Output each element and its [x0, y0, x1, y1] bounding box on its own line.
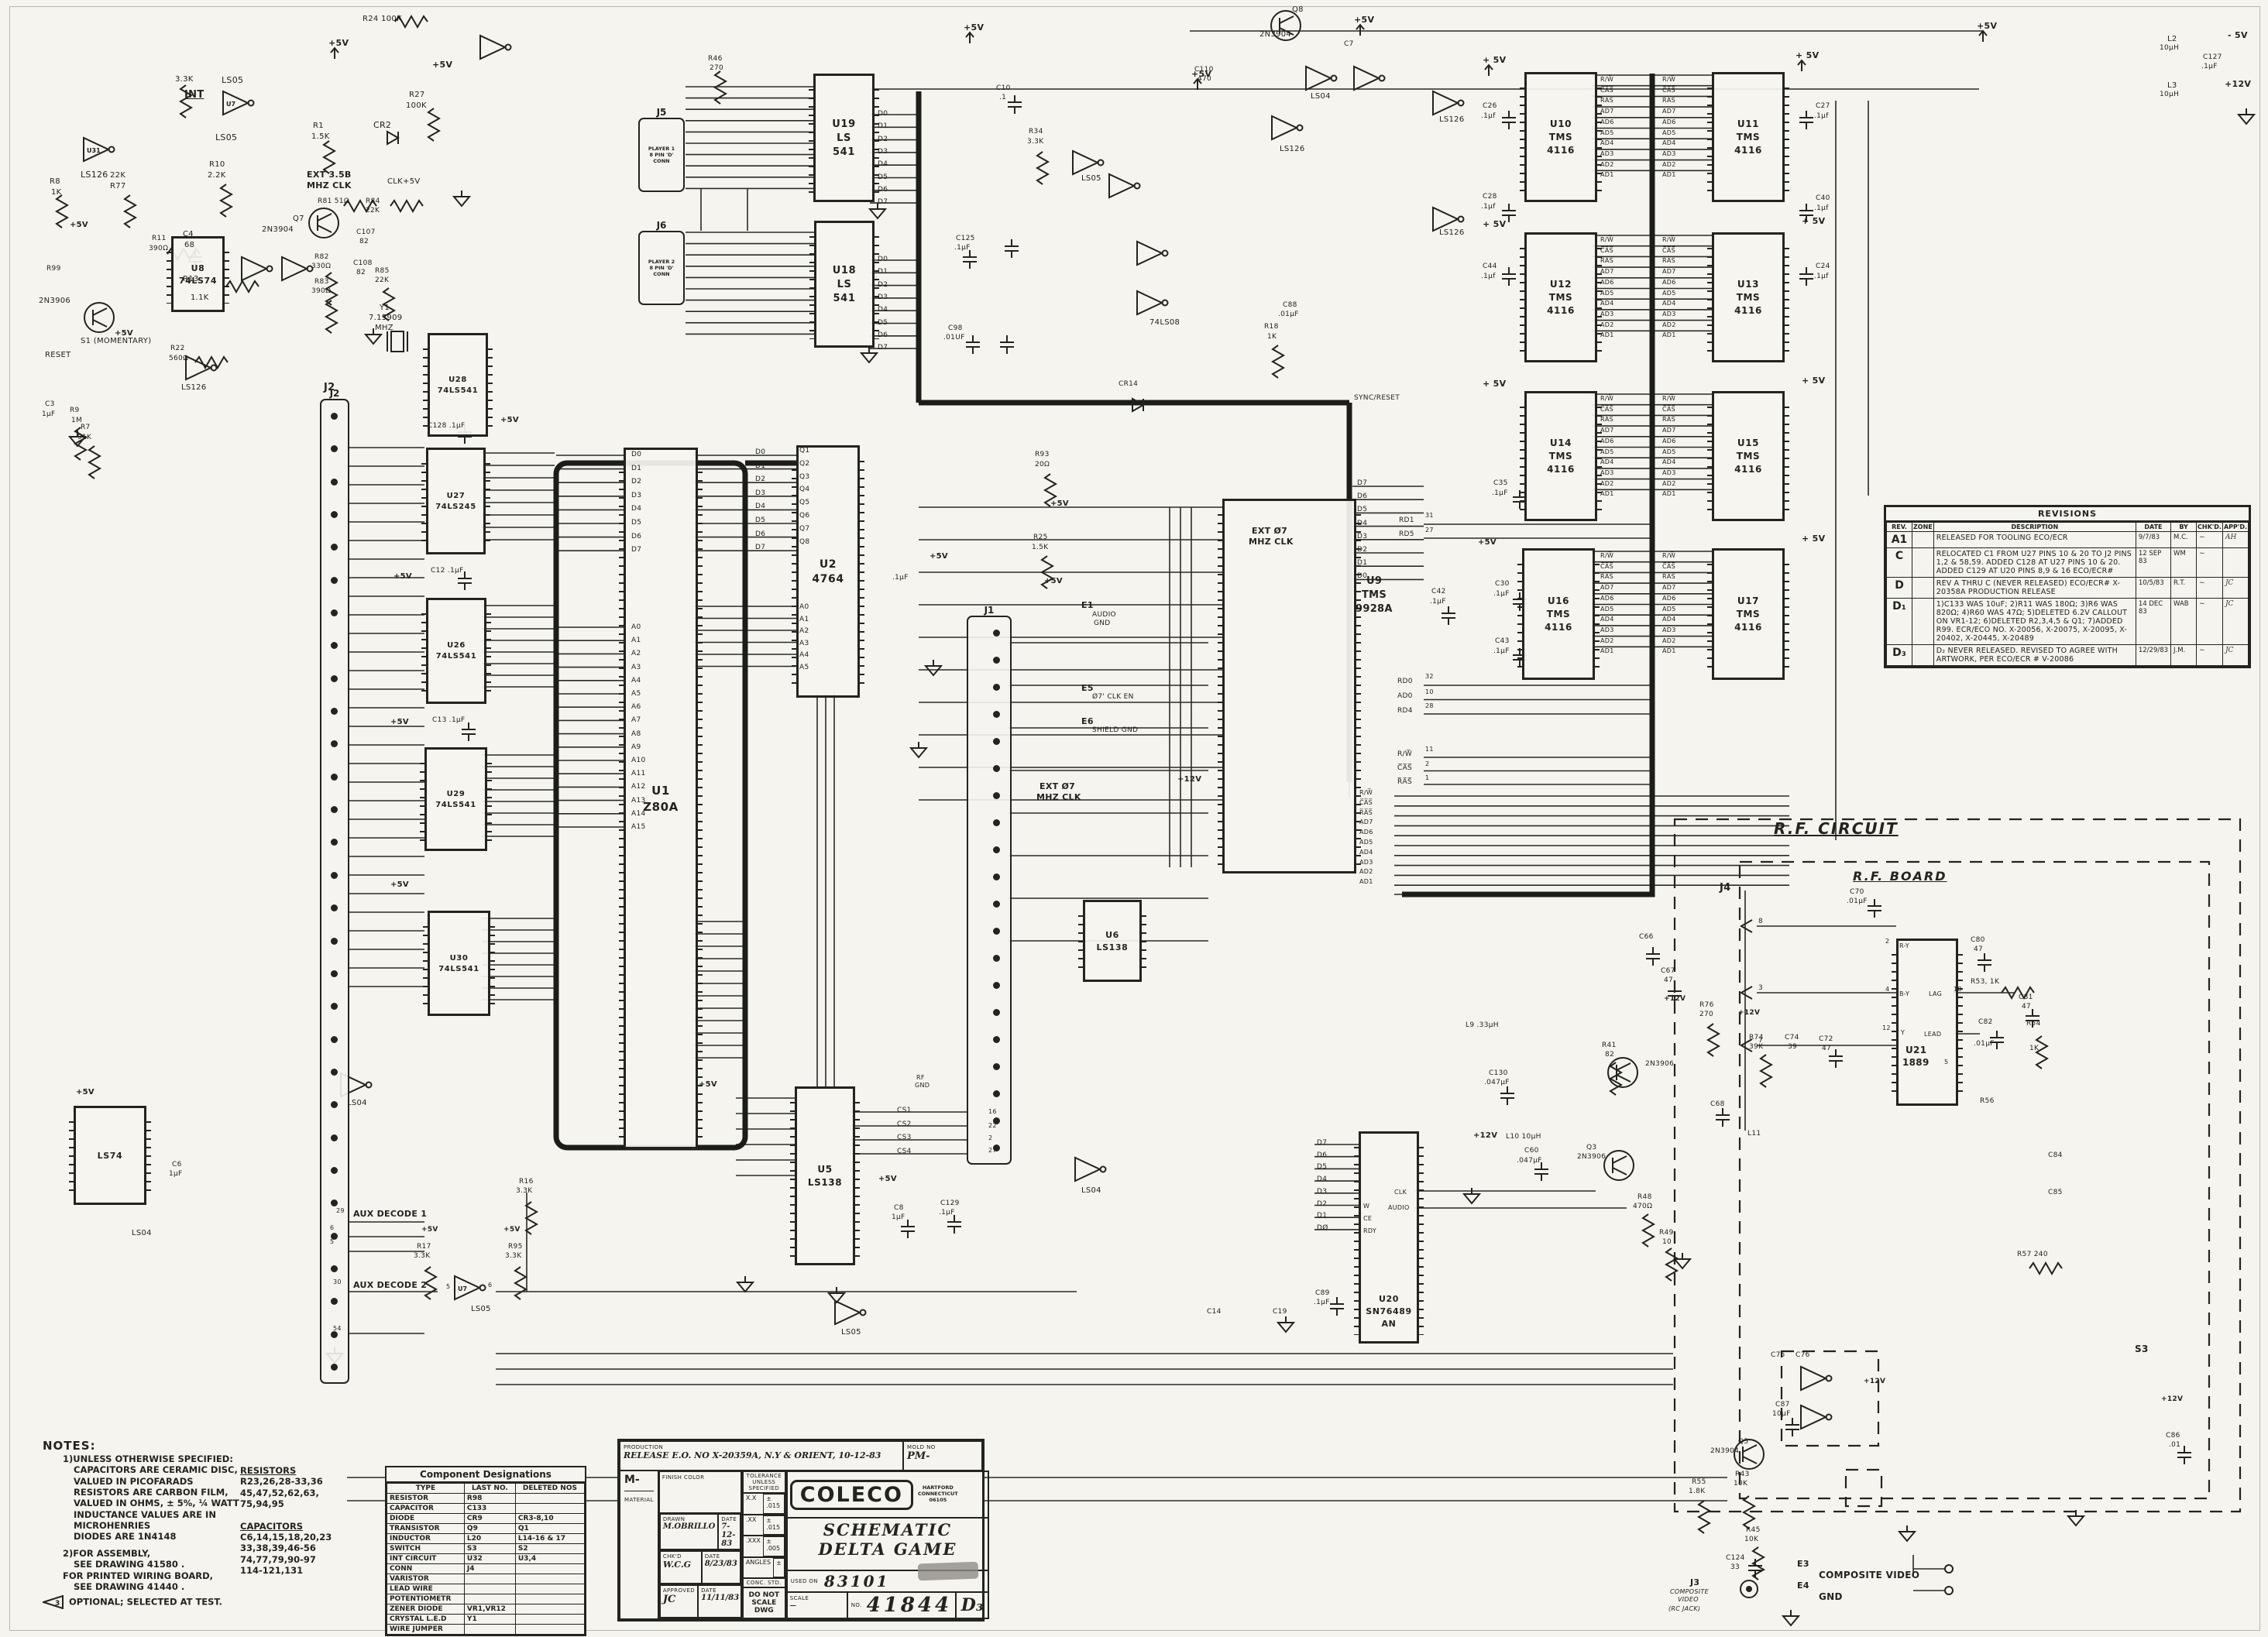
ground-icon — [1783, 1610, 1799, 1625]
component-label: LS05 — [471, 1306, 491, 1314]
pin-label: D0 — [755, 449, 765, 456]
component-label: Q5 — [1738, 1439, 1748, 1446]
component-label: RDY — [1363, 1228, 1376, 1234]
pin-label: D3 — [878, 294, 888, 301]
ground-icon — [926, 660, 941, 675]
component-label: C42 — [1431, 589, 1446, 595]
revision-cell: M.C. — [2171, 532, 2197, 548]
revision-cell: D₁ — [1887, 599, 1912, 645]
component-label: C125 — [956, 235, 975, 242]
connector-pin — [331, 413, 338, 420]
component-label: + 5V — [1483, 379, 1506, 389]
capacitor-icon — [1502, 111, 1516, 129]
supply-arrow-icon — [1485, 65, 1493, 76]
component-label: GND — [1819, 1592, 1843, 1602]
resistor-icon — [75, 427, 86, 460]
component-label: C80 — [1971, 937, 1985, 944]
date-label: DATE — [721, 1516, 737, 1522]
dram-signal: R̅A̅S̅ — [1662, 258, 1675, 264]
ic-label: LS — [837, 132, 851, 144]
resistor-icon — [226, 281, 259, 292]
transistor-icon — [1617, 1063, 1631, 1082]
component-label: SYNC/RESET — [1354, 395, 1400, 402]
revision-cell: 10/5/83 — [2136, 578, 2170, 599]
connector-pin — [993, 846, 1000, 853]
resistor-icon — [2029, 1263, 2062, 1274]
dram-signal: AD3 — [1662, 627, 1676, 633]
capacitor-icon — [1646, 947, 1660, 966]
rf-dashed-boundary — [1740, 862, 2209, 1498]
component-label: EXT Ø7 — [1252, 527, 1287, 536]
component-label: S1 (MOMENTARY) — [81, 338, 151, 346]
connector-pin — [331, 1364, 338, 1371]
component-label: 2N3904 — [262, 226, 294, 235]
capacitor-icon — [1785, 1418, 1799, 1436]
comp-table-cell — [515, 1594, 584, 1604]
component-label: MHZ CLK — [1249, 537, 1294, 547]
chkd-date: 8/23/83 — [705, 1560, 737, 1568]
pin-label: A1 — [799, 616, 809, 623]
component-label: Ø7' CLK EN — [1092, 694, 1134, 701]
supply-arrow-icon — [1798, 60, 1806, 71]
connector-j6: J6PLAYER 28 PIN 'D'CONN — [638, 231, 685, 305]
gate-icon — [1354, 67, 1379, 90]
ic-u12: U12TMS4116 — [1524, 232, 1597, 362]
pin-label: Q6 — [799, 513, 809, 520]
component-label: 20Ω — [1035, 462, 1050, 468]
comp-table-header: LAST NO. — [464, 1484, 515, 1494]
component-label: 2N3904 — [1710, 1448, 1739, 1455]
notes-block: NOTES: 1)UNLESS OTHERWISE SPECIFIED: CAP… — [43, 1439, 368, 1609]
revision-row: D₁1)C133 WAS 10uF; 2)R11 WAS 180Ω; 3)R6 … — [1887, 599, 2249, 645]
tol-val: ± .005 — [763, 1536, 784, 1556]
tolerance-title: TOLERANCE UNLESS SPECIFIED — [743, 1471, 785, 1493]
component-label: R49 — [1659, 1230, 1674, 1237]
ic-label: U1 — [651, 784, 670, 798]
component-label: +5V — [1044, 578, 1063, 586]
component-label: C88 — [1283, 302, 1297, 309]
note-line: RESISTORS ARE CARBON FILM, VALUED IN OHM… — [74, 1487, 259, 1509]
pin-label: A0 — [799, 604, 809, 611]
component-label: TMS — [1362, 590, 1387, 601]
component-label: COMPOSITE VIDEO — [1819, 1570, 1919, 1580]
component-label: RF — [916, 1075, 925, 1081]
capacitors-list-title: CAPACITORS — [240, 1521, 364, 1532]
comp-table-cell — [515, 1615, 584, 1625]
component-label: C76 — [1795, 1352, 1810, 1359]
production-eo-number: RELEASE E.O. NO X-20359A, N.Y & ORIENT, … — [624, 1450, 881, 1460]
ic-u17: U17TMS4116 — [1712, 548, 1785, 680]
gate-icon — [186, 356, 211, 379]
component-label: R18 — [1264, 324, 1279, 331]
ic-label: LS — [837, 279, 852, 290]
notes-heading: NOTES: — [43, 1439, 368, 1453]
dram-signal: AD7 — [1662, 585, 1676, 591]
component-label: 18 — [1954, 987, 1962, 993]
comp-table-row: WIRE JUMPER — [387, 1625, 585, 1635]
resistors-list-line: R23,26,28-33,36 — [240, 1476, 364, 1487]
component-label: LEAD — [1924, 1031, 1941, 1038]
comp-table-cell: L14-16 & 17 — [515, 1534, 584, 1544]
component-label: 32 — [1425, 674, 1434, 680]
comp-table-cell: ZENER DIODE — [387, 1604, 465, 1615]
component-label: 74LS08 — [1149, 319, 1180, 328]
dram-signal: AD2 — [1662, 322, 1676, 328]
revision-cell: ~ — [2197, 532, 2223, 548]
pin-label: AD5 — [1359, 839, 1373, 846]
pin-label: D1 — [878, 123, 888, 130]
connector-pin — [331, 1298, 338, 1305]
pin-label: D4 — [878, 307, 888, 314]
tol-row: .XX — [744, 1515, 763, 1536]
pin-label: D3 — [631, 492, 641, 499]
pin-label: D4 — [1317, 1176, 1327, 1183]
revision-row: CRELOCATED C1 FROM U27 PINS 10 & 20 TO J… — [1887, 548, 2249, 578]
component-label: + 5V — [1802, 217, 1825, 226]
pin-label: A15 — [631, 824, 646, 831]
ic-label: 4116 — [1734, 464, 1762, 475]
connector-pin — [331, 445, 338, 452]
component-label: 8 — [1758, 918, 1763, 925]
ic-label: 4116 — [1545, 622, 1572, 633]
connector-j5: J5PLAYER 18 PIN 'D'CONN — [638, 118, 685, 192]
gate-icon — [242, 257, 266, 280]
revision-cell: D₂ NEVER RELEASED. REVISED TO AGREE WITH… — [1933, 645, 2136, 666]
component-label: C7 — [1344, 41, 1354, 48]
component-label: 68 — [184, 242, 194, 250]
component-label: .1μF — [1492, 490, 1508, 497]
connector-pin — [331, 1134, 338, 1141]
revision-cell: ~ — [2197, 599, 2223, 645]
pin-label: D6 — [878, 187, 888, 194]
ic-u14: U14TMS4116 — [1524, 391, 1597, 521]
component-label: C14 — [1207, 1309, 1222, 1316]
component-label: LS126 — [1439, 229, 1465, 238]
pin-label: A13 — [631, 798, 646, 805]
component-label: 270 — [1699, 1011, 1713, 1018]
drawn-name: M.OBRILLO — [663, 1522, 715, 1531]
dram-signal: AD7 — [1600, 585, 1614, 591]
component-label: .1μf — [1814, 113, 1829, 120]
component-label: C124 — [1726, 1555, 1745, 1562]
component-label: 1.5K — [1032, 544, 1048, 551]
connector-label: J1 — [985, 605, 995, 616]
pin-label: CS4 — [897, 1148, 912, 1155]
ic-u30: U3074LS541 — [428, 911, 490, 1016]
component-label: 390Ω — [149, 245, 168, 252]
connector-chevron-icon — [1741, 920, 1752, 932]
dram-signal: R/W̅ — [1662, 77, 1675, 83]
capacitor-icon — [1005, 239, 1019, 258]
transistor-icon — [1743, 1445, 1757, 1464]
capacitor-icon — [1500, 1086, 1514, 1105]
dram-signal: AD7 — [1600, 427, 1614, 434]
component-label: U21 — [1905, 1045, 1926, 1055]
component-label: 10μH — [2160, 91, 2179, 98]
component-label: .1μF — [1493, 648, 1510, 655]
capacitor-icon — [1799, 267, 1813, 286]
connector-pin — [331, 1265, 338, 1272]
component-label: 22K — [110, 172, 125, 180]
pin-label: A7 — [631, 717, 641, 724]
component-label: 270 — [710, 65, 723, 72]
ic-u26: U2674LS541 — [426, 598, 486, 704]
ic-label: 74LS245 — [435, 503, 476, 511]
component-label: 2.2K — [208, 172, 226, 180]
dram-signal: AD6 — [1600, 595, 1614, 602]
connector-pin — [331, 839, 338, 846]
component-label: 2N3906 — [39, 297, 70, 306]
connector-pin — [993, 630, 1000, 637]
gate-icon — [1433, 91, 1458, 115]
connector-pin — [331, 479, 338, 486]
component-label: R85 — [375, 268, 390, 275]
revision-cell: REV A THRU C (NEVER RELEASED) ECO/ECR# X… — [1933, 578, 2136, 599]
pin-label: C̅A̅S̅ — [1359, 800, 1373, 806]
dram-signal: AD3 — [1662, 311, 1676, 317]
component-label: EXT 3.5B — [307, 170, 352, 180]
comp-table-row: CAPACITORC133 — [387, 1504, 585, 1514]
ic-label: AN — [1382, 1319, 1397, 1329]
dram-signal: AD3 — [1600, 627, 1614, 633]
revision-cell — [1912, 645, 1934, 666]
dram-signal: AD3 — [1662, 151, 1676, 157]
component-label: 470Ω — [1633, 1203, 1652, 1210]
dram-signal: AD3 — [1662, 470, 1676, 476]
component-label: +5V — [964, 23, 984, 33]
pin-label: A3 — [631, 664, 641, 671]
component-label: C98 — [948, 325, 963, 332]
component-label: C3 — [45, 401, 55, 408]
ic-label: 74LS541 — [438, 965, 479, 973]
pin-label: D2 — [878, 282, 888, 289]
component-label: AUDIO — [1092, 612, 1116, 619]
connector-pin — [331, 708, 338, 715]
component-label: .047μF — [1517, 1158, 1542, 1165]
comp-table-row: LEAD WIRE — [387, 1584, 585, 1594]
dram-signal: AD2 — [1600, 322, 1614, 328]
ic-u10: U10TMS4116 — [1524, 72, 1597, 202]
capacitor-icon — [1502, 267, 1516, 286]
ic-label: 4116 — [1734, 622, 1762, 633]
pin-label: A1 — [631, 637, 641, 644]
pin-label: D6 — [1357, 493, 1367, 500]
dram-signal: R̅A̅S̅ — [1600, 258, 1613, 264]
pin-label: A3 — [799, 640, 809, 647]
ic-label: U19 — [832, 118, 855, 130]
component-label: C44 — [1483, 263, 1497, 270]
pin-label: Q4 — [799, 486, 809, 493]
comp-table-cell: SWITCH — [387, 1544, 465, 1554]
ic-label: 74LS541 — [438, 386, 479, 395]
component-label: +12V — [1738, 1010, 1760, 1017]
ic-label: U5 — [817, 1164, 832, 1175]
dram-signal: AD5 — [1600, 606, 1614, 613]
component-label: +5V — [421, 1227, 438, 1234]
ic-label: U17 — [1737, 595, 1759, 606]
revision-cell: JC — [2222, 578, 2248, 599]
component-label: .1μf — [1481, 113, 1496, 120]
revision-cell: C — [1887, 548, 1912, 578]
connector-pin — [331, 544, 338, 551]
component-label: 5 — [330, 1239, 334, 1245]
component-label: C107 — [356, 229, 376, 236]
ic-label: LS138 — [808, 1177, 842, 1188]
component-label: C67 — [1661, 968, 1675, 975]
resistor-icon — [526, 1202, 537, 1234]
component-label: R76 — [1699, 1002, 1714, 1009]
component-label: R45 — [1746, 1527, 1761, 1534]
component-label: U9 — [1366, 576, 1382, 587]
component-label: B-Y — [1899, 991, 1909, 997]
capacitor-icon — [1716, 1108, 1730, 1127]
component-label: C̅A̅S̅ — [1397, 765, 1412, 772]
component-label: + 5V — [1483, 220, 1506, 229]
dram-signal: AD6 — [1600, 119, 1614, 125]
component-label: .01μF — [1847, 898, 1868, 905]
terminal-icon — [1945, 1565, 1953, 1573]
pin-label: D2 — [1317, 1201, 1327, 1208]
pin-label: Q1 — [799, 448, 809, 455]
ground-icon — [1278, 1316, 1294, 1332]
resistor-icon — [125, 195, 136, 228]
component-label: LS05 — [215, 133, 237, 142]
brand-city: HARTFORD — [923, 1484, 954, 1491]
component-label: 1 — [1425, 775, 1429, 781]
ic-label: SN76489 — [1366, 1306, 1412, 1316]
dram-signal: AD1 — [1600, 332, 1614, 338]
ic-label: 4116 — [1547, 464, 1575, 475]
transistor-icon — [309, 208, 338, 238]
pin-label: D7 — [1357, 480, 1367, 487]
component-label: LS126 — [81, 170, 108, 180]
comp-table-header: DELETED NOS — [515, 1484, 584, 1494]
resistors-list-line: 75,94,95 — [240, 1498, 364, 1509]
dram-signal: R/W̅ — [1662, 553, 1675, 559]
ic-u6: U6LS138 — [1083, 900, 1142, 982]
component-label: VIDEO — [1678, 1597, 1699, 1603]
transistor-icon — [84, 303, 114, 332]
connector-pin — [331, 609, 338, 616]
component-label: .1μF — [1314, 1299, 1330, 1306]
dram-signal: AD5 — [1600, 130, 1614, 136]
component-label: W — [1363, 1203, 1369, 1210]
note-line: DIODES ARE 1N4148 — [74, 1531, 259, 1542]
dram-signal: R/W̅ — [1662, 396, 1675, 402]
ground-icon — [2239, 108, 2254, 124]
ic-u16: U16TMS4116 — [1522, 548, 1595, 680]
crystal-icon — [391, 331, 404, 352]
pin-label: D4 — [755, 503, 765, 510]
pin-label: D2 — [878, 136, 888, 143]
revision-cell — [1912, 532, 1934, 548]
component-label: C43 — [1495, 638, 1510, 645]
comp-table-cell: U3,4 — [515, 1554, 584, 1564]
component-label: R56 — [1980, 1098, 1995, 1105]
comp-table-cell — [515, 1494, 584, 1504]
connector-pin — [331, 970, 338, 977]
component-label: L9 .33μH — [1466, 1022, 1499, 1029]
ground-icon — [737, 1276, 753, 1292]
component-label: .01 — [2169, 1442, 2180, 1449]
component-label: 47 — [1822, 1045, 1831, 1052]
comp-table-cell — [515, 1584, 584, 1594]
ic-label: U11 — [1737, 118, 1759, 129]
component-label: +5V — [1478, 539, 1497, 547]
component-label: J4 — [1720, 883, 1730, 894]
pin-label: Q5 — [799, 499, 809, 506]
tol-row: .XXX — [744, 1536, 763, 1556]
ic-label: U29 — [447, 790, 466, 798]
component-label: 2 — [988, 1135, 992, 1141]
component-label: E4 — [1797, 1581, 1809, 1591]
ic-u20: U20SN76489AN — [1359, 1131, 1419, 1344]
component-label: 1K — [51, 189, 62, 197]
dram-signal: AD4 — [1600, 140, 1614, 146]
ic-label: TMS — [1549, 451, 1573, 462]
pin-label: A4 — [631, 678, 641, 685]
crystal-icon — [387, 331, 407, 352]
revisions-header: BY — [2171, 523, 2197, 532]
ic-label: U8 — [191, 263, 205, 273]
pin-label: R̅A̅S̅ — [1359, 810, 1373, 816]
dram-signal: AD2 — [1662, 162, 1676, 168]
revisions-header: APP'D. — [2222, 523, 2248, 532]
dram-signal: R/W̅ — [1600, 77, 1613, 83]
component-label: 30 — [333, 1279, 342, 1285]
pin-label: D5 — [755, 517, 765, 524]
component-label: Y — [1901, 1030, 1905, 1036]
resistor-icon — [324, 141, 335, 173]
dram-signal: AD7 — [1600, 108, 1614, 115]
component-label: RESET — [45, 352, 71, 360]
component-label: RD5 — [1399, 531, 1414, 538]
revisions-table: REVISIONS REV.ZONEDESCRIPTIONDATEBYCHK'D… — [1884, 505, 2251, 668]
revision-cell: 1)C133 WAS 10uF; 2)R11 WAS 180Ω; 3)R6 WA… — [1933, 599, 2136, 645]
component-label: 27 — [1425, 527, 1434, 534]
gate-ref: U7 — [458, 1285, 467, 1292]
capacitors-list-line: 114-121,131 — [240, 1565, 364, 1576]
tol-val: ± .015 — [763, 1515, 784, 1536]
resistor-icon — [1273, 345, 1283, 378]
pin-label: D1 — [1317, 1213, 1327, 1220]
component-label: C70 — [1850, 889, 1864, 896]
component-label: +5V — [1354, 15, 1374, 25]
component-label: R17 — [417, 1244, 431, 1251]
capacitor-icon — [1008, 95, 1022, 114]
comp-table-cell: R98 — [464, 1494, 515, 1504]
component-label: C86 — [2166, 1433, 2180, 1440]
ground-icon — [454, 190, 469, 206]
gate-icon — [282, 257, 307, 280]
component-label: 33 — [1730, 1564, 1740, 1571]
component-label: 1.1K — [191, 294, 209, 303]
component-label: + 5V — [1795, 51, 1819, 60]
tol-row: X.X — [744, 1494, 763, 1514]
component-label: 22K — [375, 277, 389, 284]
revision-cell: ~ — [2197, 645, 2223, 666]
comp-table-cell: VR1,VR12 — [464, 1604, 515, 1615]
component-label: Q3 — [1586, 1145, 1596, 1151]
component-label: Y1 — [380, 304, 390, 313]
component-label: MHZ — [375, 324, 393, 333]
component-label: +12V — [1864, 1378, 1885, 1385]
component-label: R53, 1K — [1971, 979, 1999, 986]
component-label: R57 240 — [2017, 1251, 2048, 1258]
tol-row: ANGLES — [744, 1558, 773, 1578]
comp-table-row: ZENER DIODEVR1,VR12 — [387, 1604, 585, 1615]
component-label: R99 — [46, 266, 61, 273]
